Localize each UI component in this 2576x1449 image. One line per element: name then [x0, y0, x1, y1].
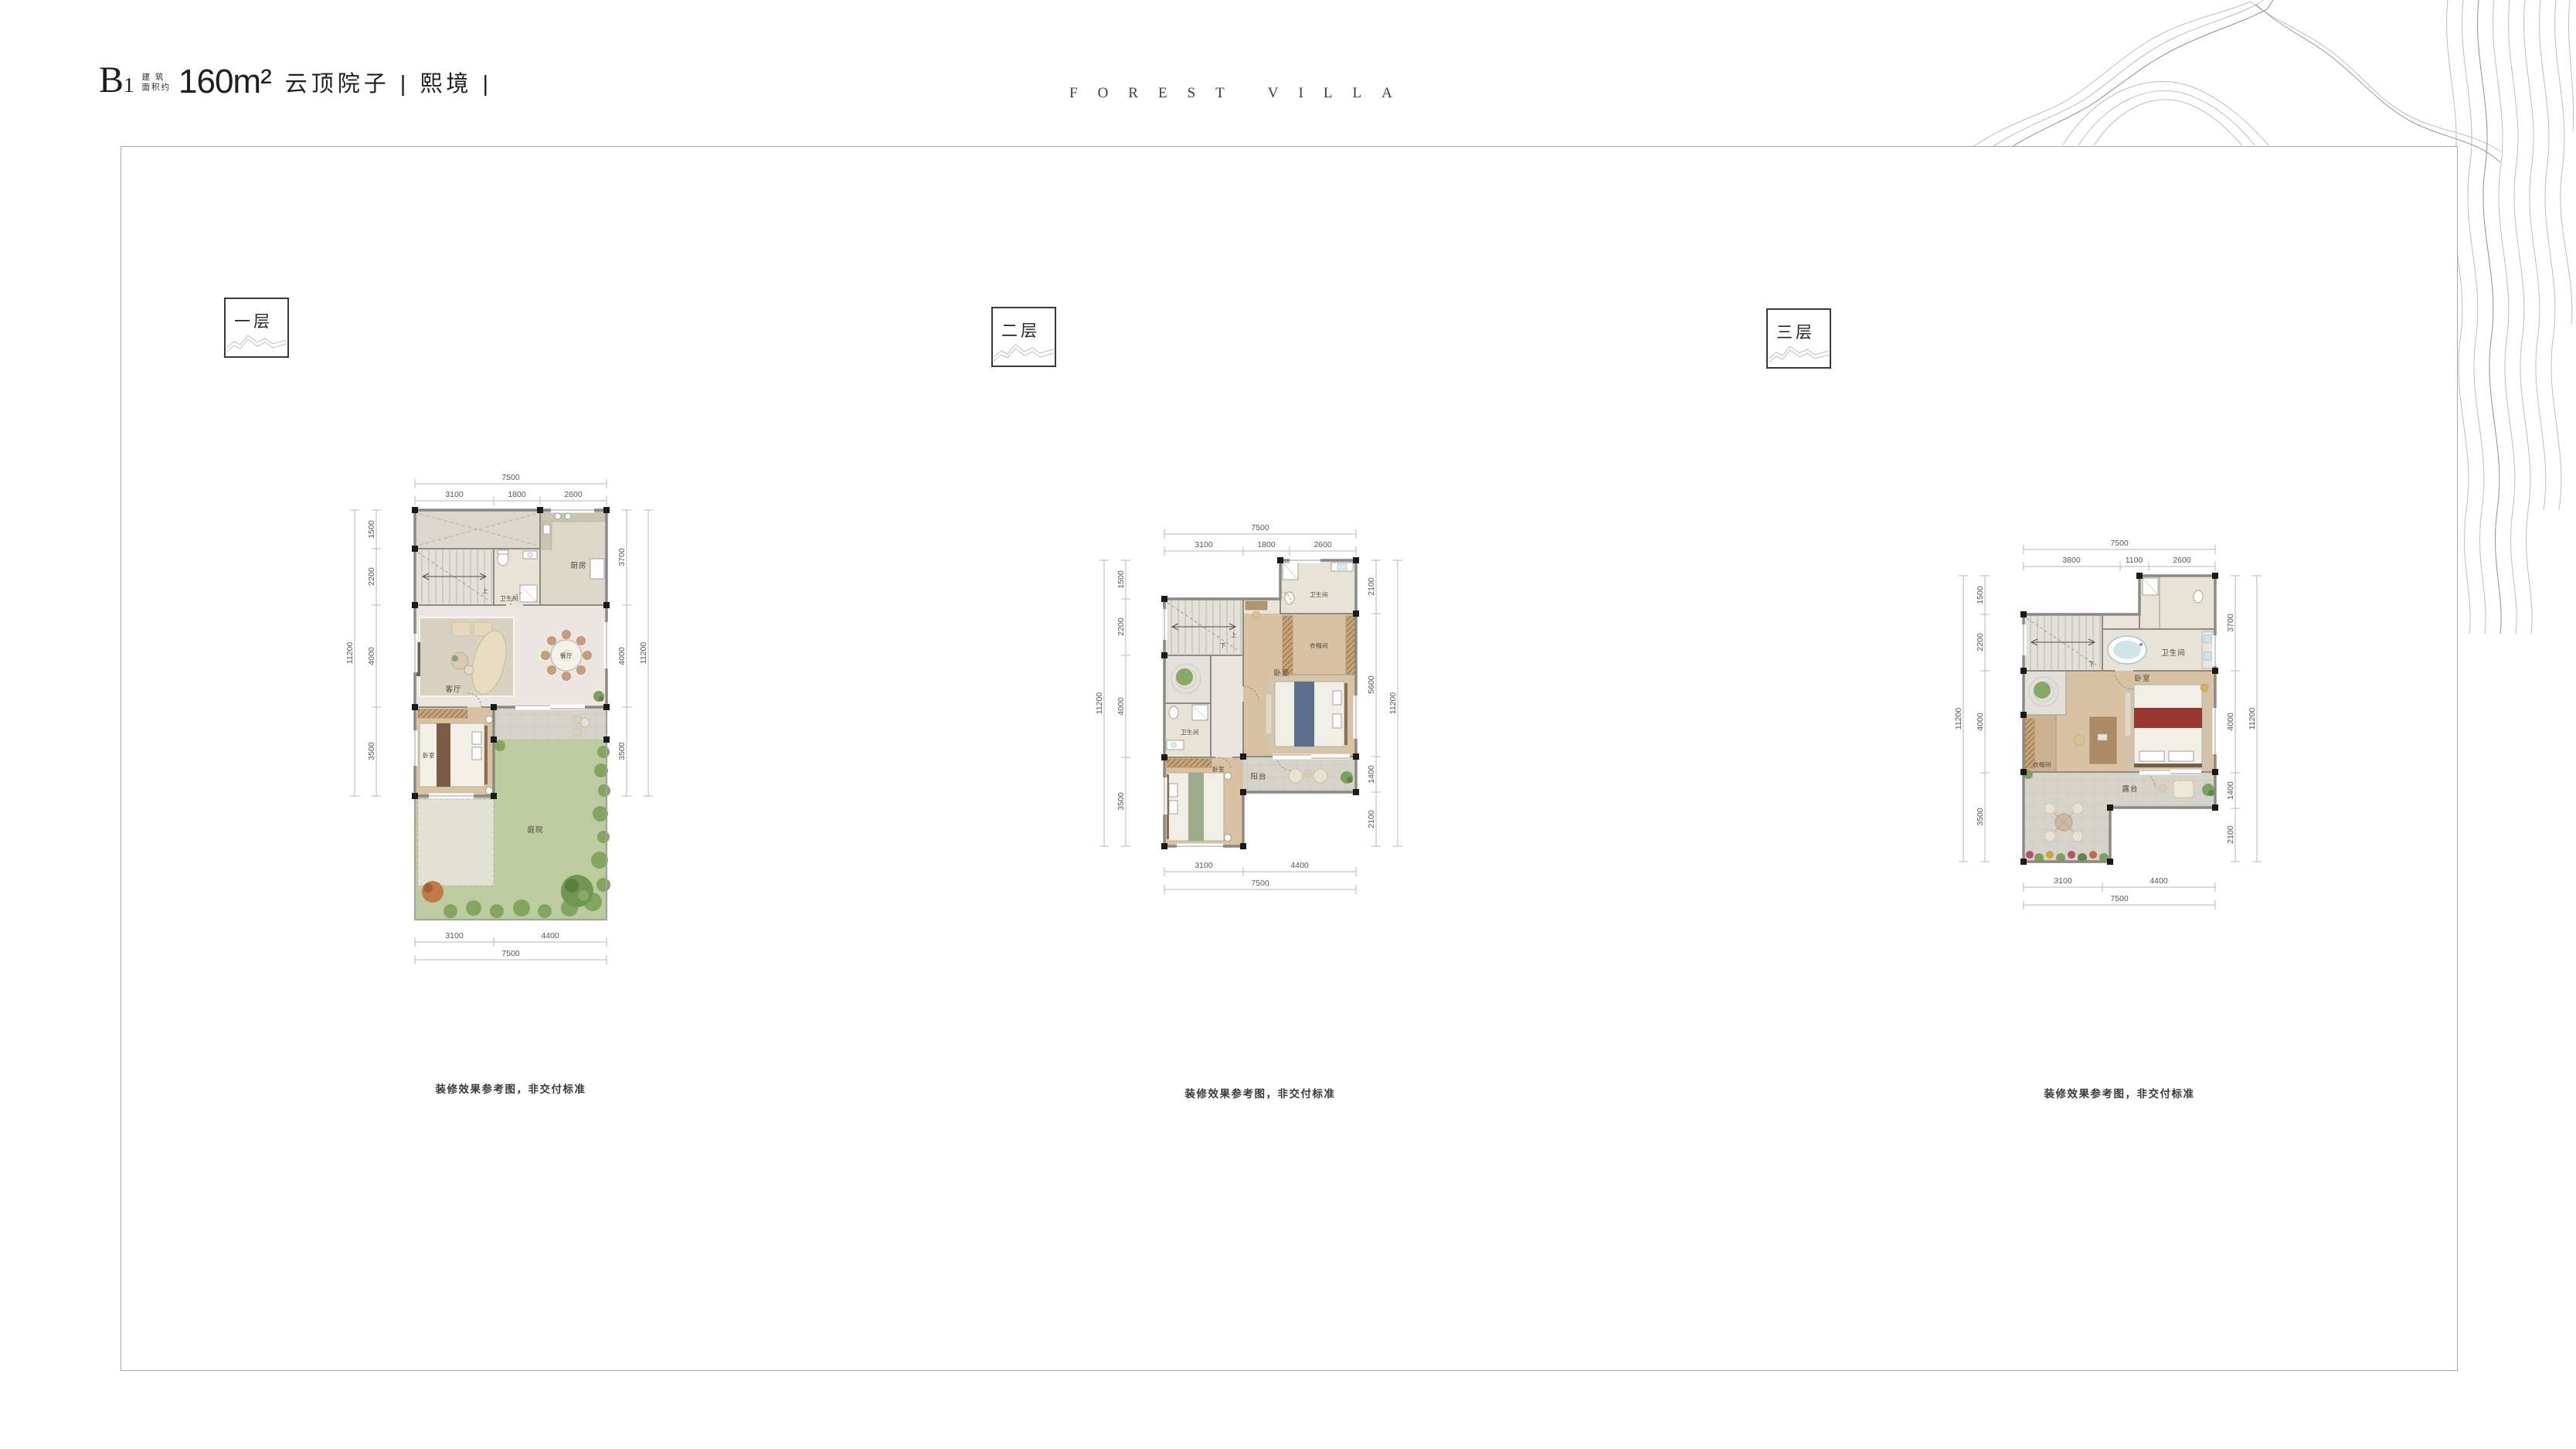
svg-text:3100: 3100: [1195, 540, 1213, 549]
svg-text:1500: 1500: [1976, 586, 1985, 604]
svg-text:7500: 7500: [501, 473, 520, 482]
svg-text:2100: 2100: [2226, 825, 2235, 844]
disclaimer-3: 装修效果参考图，非交付标准: [2044, 1085, 2195, 1100]
disclaimer-2: 装修效果参考图，非交付标准: [1185, 1085, 1336, 1100]
svg-text:4000: 4000: [1976, 713, 1985, 731]
svg-text:11200: 11200: [1388, 692, 1398, 715]
room-label-stairs-up: 上: [482, 587, 488, 594]
dims-bottom: 3100 4400 7500: [1164, 861, 1356, 894]
floor-label: 一层: [226, 299, 287, 332]
svg-text:4400: 4400: [1290, 861, 1309, 870]
svg-text:1400: 1400: [1367, 765, 1376, 784]
svg-text:11200: 11200: [345, 642, 355, 665]
floor-plan-2: 7500 3100 1800 2600 11200 1500 2200 4000…: [1087, 518, 1419, 1028]
room-label-bedroom: 卧室: [423, 751, 435, 759]
svg-text:1400: 1400: [2226, 781, 2235, 800]
svg-text:11200: 11200: [1095, 692, 1104, 715]
floor-label-box-1: 一层: [224, 298, 289, 358]
svg-text:3100: 3100: [1195, 861, 1213, 870]
floor-plan-3: 7500 3800 1100 2600 11200 1500 2200 4000…: [1946, 533, 2279, 1043]
room-label-stairs-down: 下: [2088, 661, 2095, 668]
room-label-bath-left: 卫生间: [1181, 728, 1199, 736]
svg-text:2100: 2100: [1367, 810, 1376, 828]
area-value: 160m²: [178, 69, 271, 95]
dims-bottom: 3100 4400 7500: [415, 931, 607, 964]
room-label-stairs-up: 上: [1231, 631, 1237, 638]
svg-text:3500: 3500: [617, 742, 627, 760]
floor-label-box-2: 二层: [991, 307, 1056, 367]
dims-right: 3700 4000 1400 2100 11200: [2226, 576, 2262, 862]
dims-right: 3700 4000 3500 11200: [617, 510, 653, 796]
plan-graphics: 卫生间 下 卧室 衣帽间 露台: [2020, 573, 2218, 865]
svg-text:5600: 5600: [1367, 675, 1376, 694]
dims-left: 11200 1500 2200 4000 3500: [1954, 576, 1990, 862]
svg-text:3500: 3500: [367, 742, 376, 760]
unit-code: B1: [99, 65, 134, 95]
svg-text:2600: 2600: [564, 490, 583, 499]
dims-left: 11200 1500 2200 4000 3500: [345, 510, 381, 796]
plan-graphics: 厨房 卫生间 上 客厅 餐厅 卧室 庭院: [412, 507, 610, 920]
svg-text:1800: 1800: [1257, 540, 1276, 549]
svg-text:11200: 11200: [2248, 708, 2257, 730]
area-note: 建 筑 面积约: [142, 73, 172, 93]
room-label-bath-top: 卫生间: [1310, 590, 1328, 598]
floor-label: 三层: [1768, 310, 1830, 343]
svg-text:2200: 2200: [1976, 633, 1985, 651]
svg-text:4000: 4000: [2226, 713, 2235, 731]
svg-text:11200: 11200: [1954, 708, 1963, 730]
svg-text:7500: 7500: [1251, 523, 1269, 532]
mini-contour-icon: [226, 331, 288, 354]
room-label-courtyard: 庭院: [527, 825, 543, 835]
svg-text:1500: 1500: [367, 520, 376, 539]
svg-text:2600: 2600: [1313, 540, 1332, 549]
svg-text:2600: 2600: [2173, 556, 2191, 565]
svg-text:4400: 4400: [2149, 876, 2168, 886]
room-label-bedroom: 卧室: [2134, 674, 2150, 683]
page-header: B1 建 筑 面积约 160m² 云顶院子 | 熙境 |: [99, 65, 492, 95]
floor-label-box-3: 三层: [1766, 308, 1831, 369]
room-label-bath: 卫生间: [2161, 648, 2186, 658]
svg-text:4000: 4000: [617, 647, 627, 665]
room-label-kitchen: 厨房: [570, 561, 586, 570]
svg-text:3700: 3700: [2226, 614, 2235, 632]
svg-text:3800: 3800: [2062, 556, 2081, 565]
svg-text:3500: 3500: [1116, 792, 1126, 811]
svg-text:7500: 7500: [2110, 894, 2129, 903]
svg-text:2100: 2100: [1367, 577, 1376, 596]
svg-text:3100: 3100: [445, 931, 464, 940]
room-label-terrace: 露台: [2122, 784, 2138, 794]
dims-top: 7500 3100 1800 2600: [415, 473, 607, 505]
dims-left: 11200 1500 2200 4000 3500: [1095, 560, 1130, 846]
room-label-balcony: 阳台: [1250, 772, 1266, 781]
svg-text:4400: 4400: [541, 931, 559, 940]
svg-text:4000: 4000: [1116, 697, 1126, 716]
svg-text:2200: 2200: [367, 567, 376, 586]
dims-top: 7500 3800 1100 2600: [2024, 539, 2215, 571]
svg-text:7500: 7500: [501, 949, 520, 958]
disclaimer-1: 装修效果参考图，非交付标准: [436, 1080, 586, 1096]
room-label-bath: 卫生间: [500, 594, 518, 602]
room-label-living: 客厅: [445, 685, 461, 694]
floor-plan-1: 7500 3100 1800 2600 11200 1500 2200 4000…: [338, 468, 670, 978]
room-label-closet: 衣帽间: [1310, 641, 1328, 649]
dims-bottom: 3100 4400 7500: [2024, 876, 2215, 910]
svg-text:4000: 4000: [367, 647, 376, 665]
room-label-bedroom-master: 卧室: [1273, 668, 1290, 678]
svg-text:1800: 1800: [508, 490, 526, 499]
room-label-closet: 衣帽间: [2033, 760, 2051, 768]
svg-text:3100: 3100: [2054, 876, 2072, 886]
mini-contour-icon: [994, 340, 1055, 363]
svg-text:7500: 7500: [2110, 539, 2129, 548]
svg-text:1500: 1500: [1116, 570, 1126, 589]
dims-right: 2100 5600 1400 2100 11200: [1367, 560, 1402, 846]
series-title: 云顶院子 | 熙境 |: [285, 74, 492, 96]
svg-text:3700: 3700: [617, 548, 627, 566]
svg-text:3500: 3500: [1976, 808, 1985, 826]
svg-text:11200: 11200: [639, 642, 648, 665]
svg-text:7500: 7500: [1251, 879, 1269, 888]
brand-title: FOREST VILLA: [1069, 85, 1412, 102]
plan-graphics: 卫生间 衣帽间 卧室 上 下 卫生间 卧室 阳台: [1161, 557, 1359, 849]
room-label-stairs-down: 下: [1220, 642, 1226, 649]
room-label-dining: 餐厅: [560, 652, 573, 659]
svg-text:3100: 3100: [445, 490, 464, 499]
floor-label: 二层: [993, 308, 1055, 342]
svg-text:1100: 1100: [2126, 556, 2143, 565]
svg-text:2200: 2200: [1116, 617, 1126, 636]
mini-contour-icon: [1769, 342, 1830, 365]
dims-top: 7500 3100 1800 2600: [1164, 523, 1356, 556]
room-label-bedroom-second: 卧室: [1212, 765, 1225, 773]
